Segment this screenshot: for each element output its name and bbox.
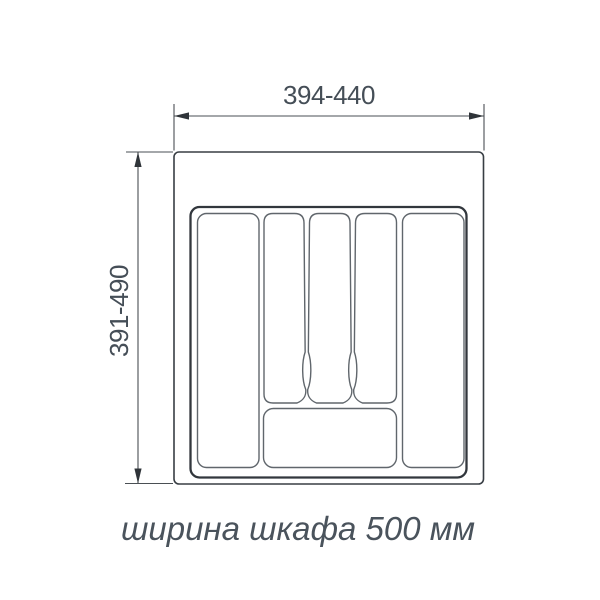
insert-outline (191, 207, 467, 478)
height-dimension-label: 391-490 (105, 211, 133, 411)
compartment-mid-left (264, 214, 306, 404)
width-dimension-label: 394-440 (229, 81, 429, 109)
cabinet-width-caption: ширина шкафа 500 мм (98, 508, 498, 550)
compartment-mid-right (354, 214, 397, 404)
arrow-right-icon (469, 112, 484, 119)
arrow-down-icon (134, 469, 141, 484)
cutlery-tray-diagram: 394-440 391-490 ширина шкафа 500 мм (0, 0, 600, 600)
compartment-right (403, 214, 465, 468)
compartments (198, 214, 465, 468)
compartment-left (198, 214, 260, 468)
arrow-up-icon (134, 152, 141, 167)
compartment-wide-bottom (264, 409, 397, 468)
compartment-mid-center (308, 214, 352, 404)
tray-outline (174, 152, 484, 484)
arrow-left-icon (174, 112, 189, 119)
